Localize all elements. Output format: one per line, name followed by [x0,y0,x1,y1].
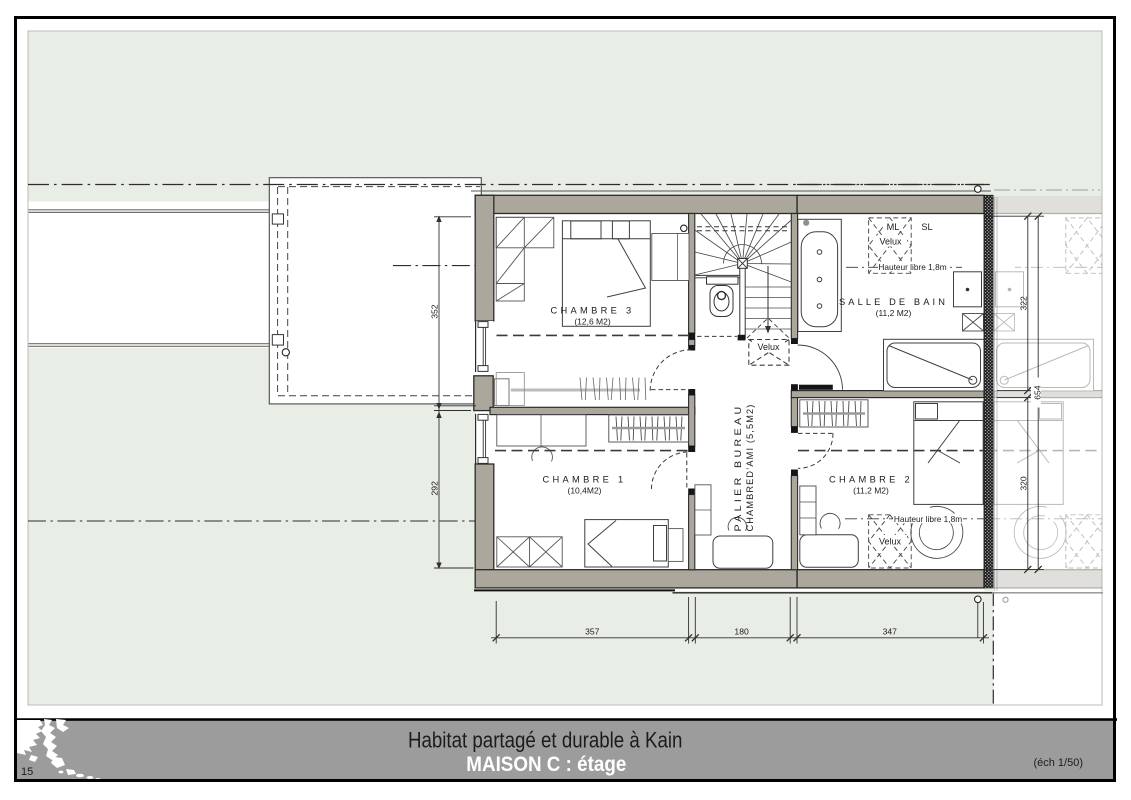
svg-text:(10,4M2): (10,4M2) [567,486,601,496]
svg-text:CHAMBRE 2: CHAMBRE 2 [829,475,913,485]
svg-text:15: 15 [21,766,33,778]
svg-text:(11,2 M2): (11,2 M2) [853,486,889,496]
svg-text:CHAMBRE 3: CHAMBRE 3 [551,306,635,316]
svg-text:(11,2 M2): (11,2 M2) [876,308,912,318]
svg-text:180: 180 [734,627,749,637]
svg-text:654: 654 [1032,385,1042,400]
svg-text:Hauteur libre 1,8m: Hauteur libre 1,8m [894,514,962,524]
svg-text:MAISON C : étage: MAISON C : étage [466,753,626,776]
svg-text:ML: ML [887,222,900,232]
svg-text:(éch 1/50): (éch 1/50) [1033,757,1083,769]
svg-text:Velux: Velux [879,536,902,546]
svg-text:CHAMBRE 1: CHAMBRE 1 [543,475,627,485]
svg-text:347: 347 [883,627,898,637]
svg-text:292: 292 [430,481,440,496]
svg-text:(12,6 M2): (12,6 M2) [574,316,611,326]
svg-text:320: 320 [1018,476,1028,491]
svg-text:PALIER BUREAU: PALIER BUREAU [733,404,743,532]
svg-text:SL: SL [921,222,932,232]
svg-text:Habitat partagé et durable à K: Habitat partagé et durable à Kain [408,728,683,753]
svg-text:Velux: Velux [757,342,780,352]
svg-text:352: 352 [430,304,440,319]
svg-text:CHAMBRED’AMI (5,5M2): CHAMBRED’AMI (5,5M2) [745,404,755,532]
svg-text:Velux: Velux [879,237,902,247]
svg-text:322: 322 [1018,296,1028,311]
svg-text:SALLE DE BAIN: SALLE DE BAIN [839,297,948,307]
svg-text:Hauteur libre 1,8m: Hauteur libre 1,8m [878,262,946,272]
svg-text:357: 357 [585,627,600,637]
